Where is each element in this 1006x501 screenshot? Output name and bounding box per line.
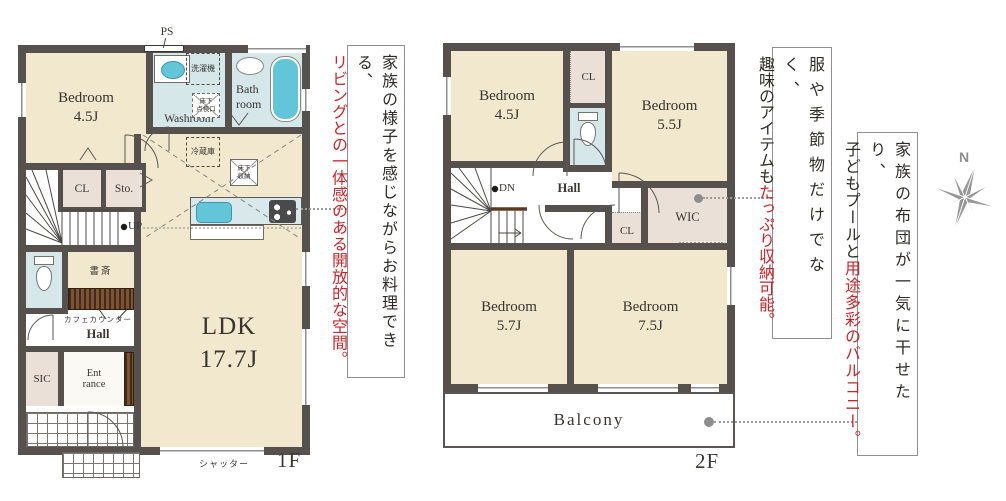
wall [563,51,570,165]
stairs-dn-label: DN [499,182,515,194]
room-bedroom4-2f-size: 7.5J [638,317,663,337]
wall [563,165,612,172]
note-kitchen-red: リビングとの一体感のある開放的な空間。 [329,54,346,368]
room-wic-label: WIC [675,210,699,225]
window [620,43,694,51]
note-balcony-red: 用途多彩のバルコニー。 [842,260,859,447]
room-storage-1f-label: Sto. [115,183,133,195]
floor2-label: 2F [695,449,719,474]
floor1-plan: Bedroom 4.5J Washroom 洗濯機 床下 点検口 Bath ro… [18,45,310,455]
note-storage-black1: 服や季節物だけでなく、 [781,56,823,281]
window [727,267,735,305]
window [302,329,310,405]
washing-machine-label: 洗濯機 [191,64,215,74]
note-storage-black2: 趣味のアイテムも [756,56,773,184]
note-storage-col2: 趣味のアイテムもたっぷり収納可能。 [752,56,777,330]
wall [605,205,612,248]
wall [146,127,302,134]
note-balcony-black1: 家族の布団が一気に干せたり、 [867,141,909,405]
underfloor-storage-box: 床下 収納 [230,159,258,186]
room-bedroom1-2f: Bedroom 4.5J [451,51,563,161]
balcony: Balcony [443,392,735,448]
entrance-porch-tiles [26,412,134,447]
cafe-counter-label: カフェカウンター [50,314,146,325]
wall [134,348,141,447]
shutter-label: シャッター [192,457,256,470]
room-bedroom4-2f-label: Bedroom [623,298,679,318]
note-balcony: 家族の布団が一気に干せたり、 子どもプールと用途多彩のバルコニー。 [857,132,918,456]
room-bedroom2-2f-label: Bedroom [642,97,698,117]
room-study-label: 書斎 [89,263,112,277]
room-closet-1f: CL [63,170,101,207]
note-kitchen-col2: リビングとの一体感のある開放的な空間。 [325,54,350,369]
compass-north-label: N [959,149,969,165]
entrance-slat-wall [124,352,134,406]
window-shutter-opening [160,447,264,455]
hall-2f-text: Hall [558,181,581,195]
room-bedroom-1f: Bedroom 4.5J [26,53,146,163]
underfloor-hatch-box: 床下 点検口 [192,93,220,118]
room-closet-top-2f-label: CL [581,71,595,83]
room-bedroom2-2f-size: 5.5J [657,116,682,136]
note-kitchen: 家族の様子を感じながらお料理できる、 リビングとの一体感のある開放的な空間。 [347,45,405,378]
room-closet-1f-label: CL [75,183,90,195]
room-bedroom3-2f-size: 5.7J [497,317,522,337]
wall [225,53,232,127]
note-balcony-black2: 子どもプールと [842,141,859,260]
floorplan-page: { "f1": { "label": "1F", "ps": "PS", "wa… [0,0,1006,501]
window-balcony-door [478,384,548,392]
refrigerator-label: 冷蔵庫 [191,147,215,157]
toilet-tank-1f [34,256,54,265]
window [248,45,306,53]
room-study: 書斎 [68,252,134,288]
floor1-text: 1F [277,448,301,472]
underfloor-hatch-line2: 点検口 [196,106,216,113]
room-ldk-size: 17.7J [156,344,302,377]
stairs-dn-text: DN [499,182,515,194]
hall-1f-label: Hall [76,327,120,342]
wall [641,181,727,188]
stairs-up-text: UP [128,220,142,232]
room-bedroom3-2f-label: Bedroom [481,298,537,318]
hall-1f-text: Hall [87,327,110,341]
underfloor-storage-line2: 収納 [238,173,251,180]
note-kitchen-col1: 家族の様子を感じながらお料理できる、 [350,54,400,369]
room-bedroom4-2f: Bedroom 7.5J [574,250,727,384]
room-bathroom-label1: Bath [236,82,259,97]
room-bedroom-1f-size: 4.5J [74,108,99,128]
wall [567,250,574,384]
balcony-note-leader [714,421,857,423]
note-storage-col1: 服や季節物だけでなく、 [777,56,827,330]
vanity-counter [154,55,190,83]
note-balcony-col2: 子どもプールと用途多彩のバルコニー。 [838,141,863,447]
room-entrance: Ent rance [64,352,124,406]
kitchen-stove [269,200,296,223]
toilet-tank-2f [578,112,598,121]
room-bathroom-label2: room [236,97,261,112]
room-closet-mid-2f-label: CL [620,225,634,237]
wall [451,243,727,250]
balcony-label: Balcony [554,410,625,430]
room-ldk-label: LDK 17.7J [156,311,302,376]
note-kitchen-black: 家族の様子を感じながらお料理できる、 [354,54,396,350]
room-bedroom1-2f-label: Bedroom [479,87,535,107]
room-entrance-line1: Ent [87,368,102,379]
room-ldk [141,134,302,447]
cafe-counter-wood [68,288,134,310]
compass-star [925,157,1005,232]
wic-note-dot [694,194,703,203]
wall [451,161,570,168]
room-closet-top-2f: CL [570,51,606,103]
window [443,77,451,115]
floor2-plan: Bedroom 4.5J CL Bedroom 5.5J DN Hall CL … [443,43,735,392]
room-bedroom3-2f: Bedroom 5.7J [451,250,567,384]
cafe-counter-text: カフェカウンター [64,315,132,324]
kitchen-counter-lower [190,225,264,240]
window [302,89,310,111]
shutter-text: シャッター [199,459,249,469]
stairs-up-label: UP [128,220,142,232]
window-balcony-door [598,384,678,392]
window-balcony-door [691,384,719,392]
room-bedroom1-2f-size: 4.5J [495,106,520,126]
wall [26,245,134,252]
porch-apron-tiles [62,452,140,478]
hall-2f-label: Hall [547,181,591,196]
compass-rose: N [925,140,1005,232]
underfloor-hatch-line1: 床下 [200,98,213,105]
room-sic-label: SIC [33,373,50,385]
room-bedroom2-2f: Bedroom 5.5J [612,51,727,181]
room-ldk-name: LDK [156,311,302,344]
ps-label: PS [152,26,182,38]
washing-machine-box: 洗濯機 [186,53,220,85]
refrigerator-box: 冷蔵庫 [186,137,220,167]
kitchen-sink [196,202,232,223]
floor2-text: 2F [695,449,719,473]
room-sic: SIC [26,352,58,406]
wall [545,205,605,212]
wall [605,51,612,165]
wall [641,188,648,248]
vanity-sink [161,61,185,79]
window [18,83,26,117]
room-entrance-line2: rance [83,379,106,390]
room-bedroom-1f-label: Bedroom [58,89,114,109]
balcony-note-dot [704,417,714,427]
note-balcony-col1: 家族の布団が一気に干せたり、 [863,141,913,447]
ps-text: PS [161,26,174,38]
note-storage: 服や季節物だけでなく、 趣味のアイテムもたっぷり収納可能。 [772,47,832,339]
bathtub [271,57,300,121]
window [302,252,310,286]
note-storage-red: たっぷり収納可能。 [756,184,773,328]
floor1-label: 1F [277,448,301,473]
underfloor-storage-line1: 床下 [238,165,251,172]
room-storage-1f: Sto. [106,170,142,207]
bath-stool [236,57,264,75]
